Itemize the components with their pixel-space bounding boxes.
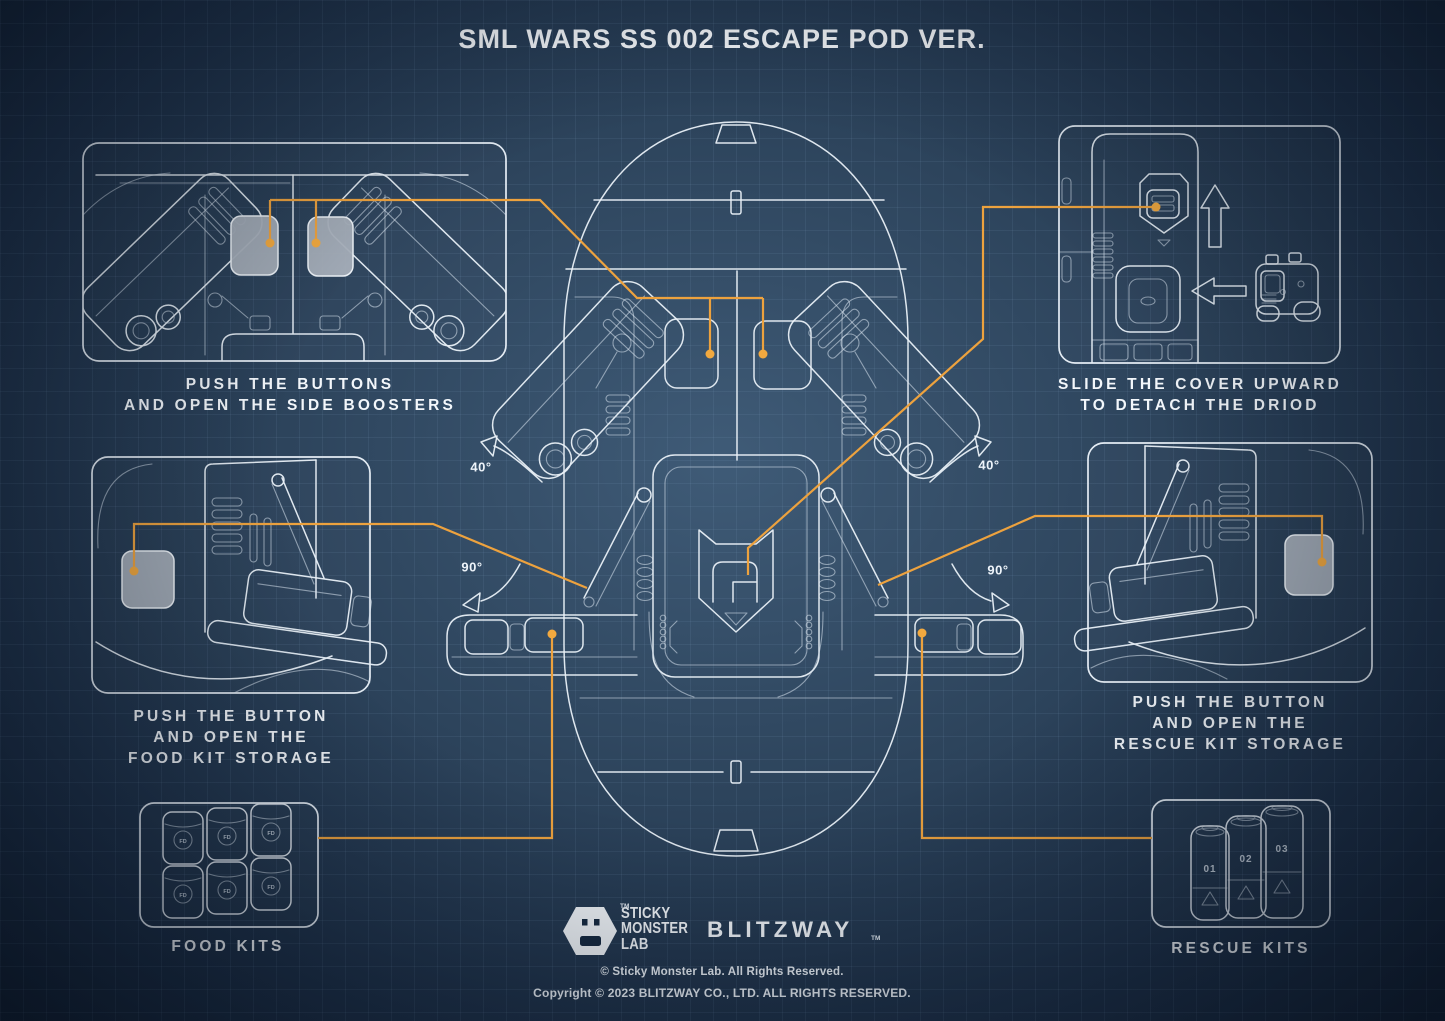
callout-box-side-boosters <box>74 143 517 365</box>
caption-food-storage-line2: AND OPEN THE <box>153 729 309 746</box>
svg-text:FD: FD <box>179 893 186 899</box>
sml-line3: LAB <box>621 936 649 953</box>
caption-rescue-storage-line3: RESCUE KIT STORAGE <box>1114 736 1346 753</box>
copyright-blitzway: Copyright © 2023 BLITZWAY CO., LTD. ALL … <box>533 986 911 1000</box>
pod-food-tray <box>447 615 637 675</box>
caption-side-boosters-line1: PUSH THE BUTTONS <box>186 376 395 393</box>
caption-rescue-storage: PUSH THE BUTTON AND OPEN THE RESCUE KIT … <box>1114 692 1346 755</box>
svg-text:01: 01 <box>1203 864 1216 875</box>
svg-text:FD: FD <box>223 889 230 895</box>
callout-box-food-kits: FD FD FD FD FD FD <box>140 803 318 927</box>
pod-bottom-hatch <box>714 830 758 851</box>
svg-text:FD: FD <box>179 839 186 845</box>
rescue-storage-button <box>1285 535 1333 595</box>
blitzway-wordmark: BLITZWAY <box>707 917 854 943</box>
angle-label-40-left: 40° <box>470 460 491 475</box>
caption-droid-line2: TO DETACH THE DRIOD <box>1080 397 1319 414</box>
angle-label-40-right: 40° <box>978 458 999 473</box>
caption-rescue-storage-line1: PUSH THE BUTTON <box>1133 694 1328 711</box>
svg-text:FD: FD <box>223 835 230 841</box>
svg-text:FD: FD <box>267 831 274 837</box>
callout-box-food-storage <box>92 457 396 693</box>
angle-arrows <box>463 436 1009 612</box>
caption-food-storage-line1: PUSH THE BUTTON <box>134 708 329 725</box>
caption-droid: SLIDE THE COVER UPWARD TO DETACH THE DRI… <box>1058 374 1342 416</box>
sticky-monster-lab-wordmark: STICKY MONSTER LAB <box>621 906 688 952</box>
sml-trademark: TM <box>620 903 629 910</box>
caption-rescue-storage-line2: AND OPEN THE <box>1152 715 1308 732</box>
svg-text:FD: FD <box>267 885 274 891</box>
sticky-monster-lab-logo <box>563 907 617 955</box>
pod-top-hatch <box>716 125 756 143</box>
angle-label-90-left: 90° <box>461 560 482 575</box>
blueprint-line-art: FD FD FD FD FD FD <box>0 0 1445 1021</box>
svg-text:03: 03 <box>1275 844 1288 855</box>
caption-rescue-kits: RESCUE KITS <box>1171 938 1310 959</box>
pod-rescue-tray <box>875 615 1023 675</box>
pod-emblem <box>699 530 773 632</box>
caption-droid-line1: SLIDE THE COVER UPWARD <box>1058 376 1342 393</box>
caption-side-boosters: PUSH THE BUTTONS AND OPEN THE SIDE BOOST… <box>124 374 456 416</box>
poster-title: SML WARS SS 002 ESCAPE POD VER. <box>458 24 985 55</box>
food-storage-button <box>122 551 174 608</box>
caption-side-boosters-line2: AND OPEN THE SIDE BOOSTERS <box>124 397 456 414</box>
caption-food-storage: PUSH THE BUTTON AND OPEN THE FOOD KIT ST… <box>128 706 334 769</box>
callout-box-rescue-kits: 01 02 03 <box>1152 800 1330 927</box>
caption-food-kits: FOOD KITS <box>171 936 284 957</box>
blueprint-poster: FD FD FD FD FD FD <box>0 0 1445 1021</box>
blitzway-trademark: TM <box>871 935 880 942</box>
callout-box-droid <box>1059 126 1340 363</box>
copyright-sml: © Sticky Monster Lab. All Rights Reserve… <box>600 966 843 978</box>
angle-label-90-right: 90° <box>987 563 1008 578</box>
svg-text:02: 02 <box>1239 854 1252 865</box>
caption-food-storage-line3: FOOD KIT STORAGE <box>128 750 334 767</box>
escape-pod-drawing <box>447 122 1023 856</box>
pod-center-console <box>653 455 819 677</box>
